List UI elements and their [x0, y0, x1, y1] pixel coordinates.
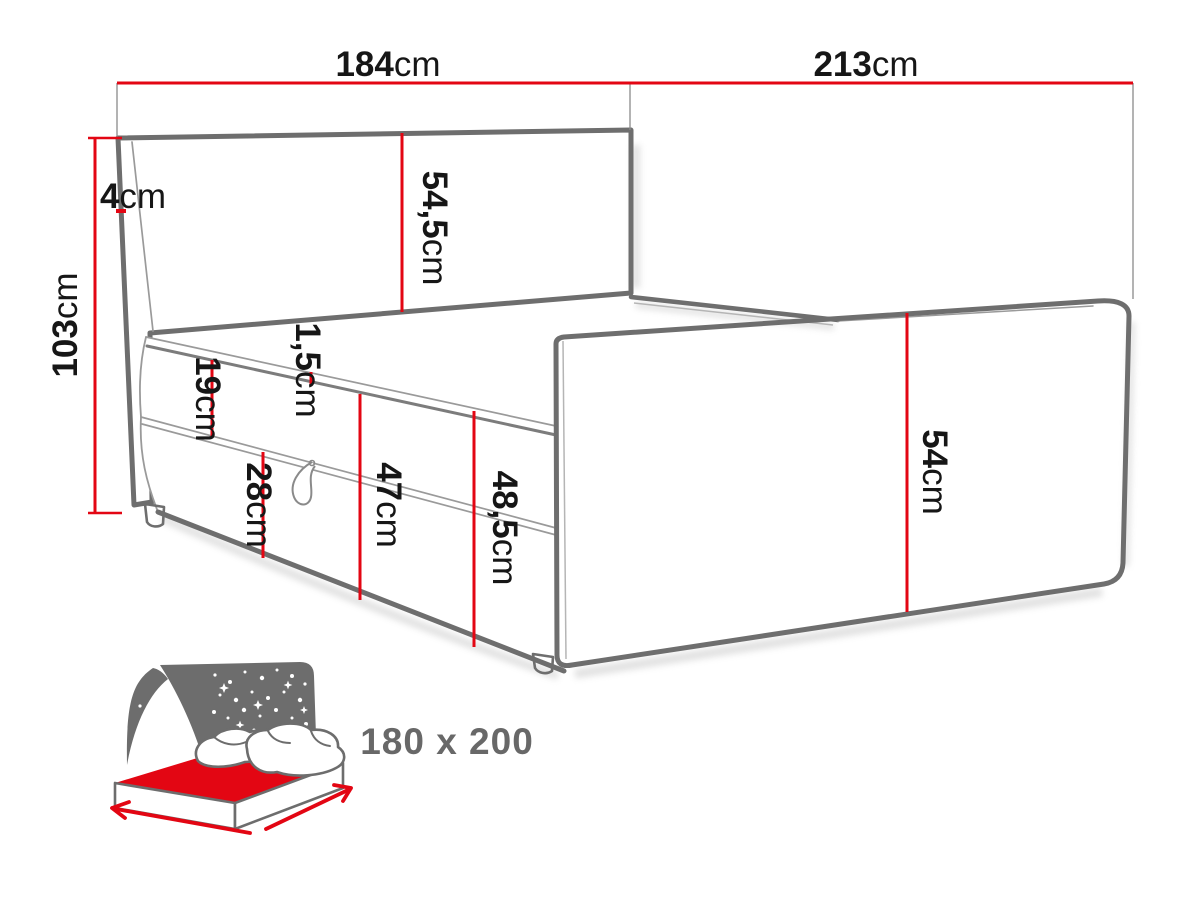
diagram-canvas: 184cm 213cm 4cm 103cm 54,5cm 19cm 1,5cm …	[0, 0, 1200, 899]
label-length-side: 213cm	[813, 45, 918, 84]
label-mattress-side: 19cm	[188, 356, 227, 442]
far-rail	[631, 297, 1093, 325]
label-footboard-face: 54cm	[915, 429, 954, 515]
pillow-right	[246, 724, 344, 776]
label-headboard-face: 54,5cm	[415, 171, 454, 286]
label-box-side: 28cm	[239, 462, 278, 548]
label-headboard-frame: 4cm	[100, 177, 166, 216]
label-height-total: 103cm	[46, 272, 85, 377]
extension-lines	[117, 83, 1133, 299]
label-side-outer: 48,5cm	[485, 471, 524, 586]
bed-dimension-diagram: 184cm 213cm 4cm 103cm 54,5cm 19cm 1,5cm …	[0, 0, 1200, 899]
label-width-head: 184cm	[335, 45, 440, 84]
label-topper-lip: 1,5cm	[288, 322, 327, 417]
footboard-bottom-shadow	[575, 592, 1102, 674]
label-side-inner: 47cm	[369, 462, 408, 548]
headboard-frame-inner-line	[132, 142, 153, 331]
footboard-left-inner-line	[563, 341, 566, 659]
footboard	[556, 301, 1129, 666]
size-label: 180 x 200	[360, 721, 534, 762]
footboard-panel	[556, 301, 1129, 666]
bed-size-icon	[112, 662, 351, 833]
moon-crescent-shape	[127, 668, 168, 765]
